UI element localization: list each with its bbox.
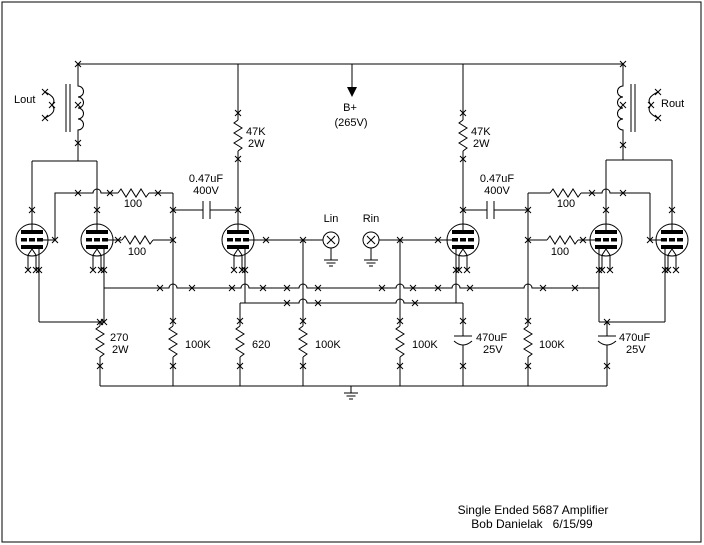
rin-jack-icon xyxy=(363,232,379,248)
resistor-100k-gridleak-left: 100K xyxy=(169,318,211,386)
tube-right-driver xyxy=(447,224,479,273)
rin-label: Rin xyxy=(363,213,380,225)
r100k-input-left-value: 100K xyxy=(315,339,341,351)
cathode-wires xyxy=(39,270,665,325)
tube-left-output-outer xyxy=(16,224,48,273)
coupling-cap-right: 0.47uF 400V xyxy=(463,173,531,219)
resistor-100k-input-left: 100K xyxy=(299,240,341,386)
transformer-rout: Rout xyxy=(618,64,685,160)
bplus-arrow-icon xyxy=(347,87,357,97)
rstop-left-inner-value: 100 xyxy=(128,246,146,258)
coupling-cap-left: 0.47uF 400V xyxy=(170,173,238,219)
jack-rin: Rin xyxy=(363,213,380,266)
r100k-gridleak-right-value: 100K xyxy=(539,339,565,351)
ccouple-left-rating: 400V xyxy=(193,185,219,197)
grid-network-left: 100 100 xyxy=(48,189,176,321)
bplus-label: B+ xyxy=(343,102,357,114)
power-rail xyxy=(75,61,626,67)
lin-ground-icon xyxy=(324,260,338,266)
rstop-right-inner-value: 100 xyxy=(551,246,569,258)
resistor-47k-right: 47K 2W xyxy=(459,64,491,224)
r100k-input-right-value: 100K xyxy=(412,339,438,351)
ground-icon xyxy=(344,393,358,399)
tube-right-output-inner xyxy=(590,224,622,273)
bplus-supply: B+ (265V) xyxy=(334,64,367,129)
title-block: Single Ended 5687 Amplifier Bob Danielak… xyxy=(458,503,609,531)
lout-label: Lout xyxy=(14,94,35,106)
r270-rating: 2W xyxy=(112,344,129,356)
r47k-left-rating: 2W xyxy=(248,138,265,150)
r100k-gridleak-left-value: 100K xyxy=(185,339,211,351)
schematic-author-date: Bob Danielak 6/15/99 xyxy=(471,517,593,531)
bplus-voltage: (265V) xyxy=(334,117,367,129)
lout-primary-coil xyxy=(78,64,84,161)
tube-left-output-inner xyxy=(81,224,113,273)
transformer-lout: Lout xyxy=(14,64,84,161)
r47k-right-rating: 2W xyxy=(473,138,490,150)
ccouple-right-value: 0.47uF xyxy=(480,173,515,185)
lin-label: Lin xyxy=(324,213,339,225)
rstop-left-outer-value: 100 xyxy=(124,198,142,210)
c470-output-value: 470uF xyxy=(619,332,650,344)
input-wire-right xyxy=(379,237,447,243)
ccouple-right-rating: 400V xyxy=(484,185,510,197)
resistor-100k-input-right: 100K xyxy=(396,240,438,386)
rin-ground-icon xyxy=(364,260,378,266)
grid-network-right: 100 100 xyxy=(525,189,656,321)
lin-jack-icon xyxy=(323,232,339,248)
tube-right-output-outer xyxy=(656,224,688,273)
c470-driver-rating: 25V xyxy=(483,344,503,356)
right-plate-wires xyxy=(603,160,675,224)
cathode-bus-driver xyxy=(240,299,463,306)
rout-label: Rout xyxy=(661,98,684,110)
ccouple-left-value: 0.47uF xyxy=(189,173,224,185)
c470-output-rating: 25V xyxy=(626,344,646,356)
schematic-title: Single Ended 5687 Amplifier xyxy=(458,503,609,517)
cap-470uf-driver: 470uF 25V xyxy=(454,303,507,386)
resistor-620: 620 xyxy=(236,303,270,386)
cathode-bus-output xyxy=(104,284,599,291)
r47k-right-value: 47K xyxy=(471,126,491,138)
jack-lin: Lin xyxy=(323,213,339,266)
ground-rail xyxy=(100,386,607,399)
r270-value: 270 xyxy=(110,332,128,344)
resistor-47k-left: 47K 2W xyxy=(234,64,266,224)
input-wire-left xyxy=(254,237,323,243)
r620-value: 620 xyxy=(252,339,270,351)
schematic-canvas: B+ (265V) Lout Rout 47K 2W 47K 2W xyxy=(0,0,704,545)
tube-left-driver xyxy=(222,224,254,273)
r47k-left-value: 47K xyxy=(246,126,266,138)
resistor-100k-gridleak-right: 100K xyxy=(524,318,565,386)
resistor-270: 270 2W xyxy=(96,319,129,386)
rstop-right-outer-value: 100 xyxy=(557,198,575,210)
cap-470uf-output: 470uF 25V xyxy=(598,322,650,386)
c470-driver-value: 470uF xyxy=(476,332,507,344)
